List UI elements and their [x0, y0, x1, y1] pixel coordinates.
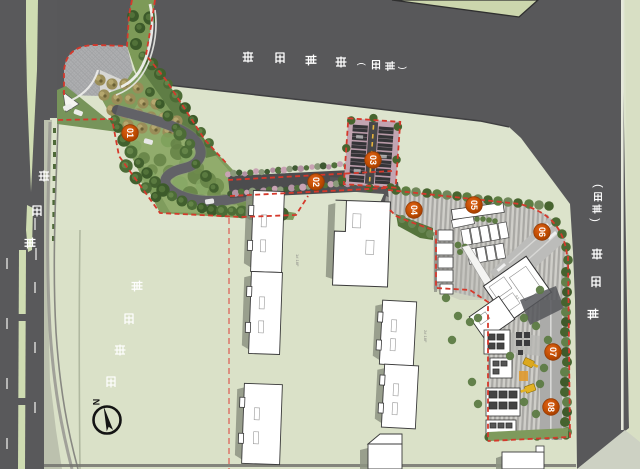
- svg-text:(: (: [357, 63, 367, 66]
- svg-text:07: 07: [548, 347, 558, 357]
- svg-text:N: N: [91, 399, 101, 406]
- svg-text:06: 06: [537, 227, 547, 237]
- svg-text:02: 02: [311, 177, 321, 187]
- svg-text:04: 04: [409, 205, 419, 215]
- svg-text:2# 18F: 2# 18F: [423, 330, 428, 343]
- svg-text:1# 18F: 1# 18F: [295, 254, 300, 267]
- svg-text:(: (: [592, 184, 604, 188]
- svg-text:05: 05: [469, 200, 479, 210]
- svg-text:03: 03: [368, 155, 378, 165]
- svg-text:): ): [589, 218, 601, 222]
- svg-text:08: 08: [546, 402, 556, 412]
- svg-text:): ): [398, 67, 408, 70]
- svg-text:01: 01: [125, 128, 135, 138]
